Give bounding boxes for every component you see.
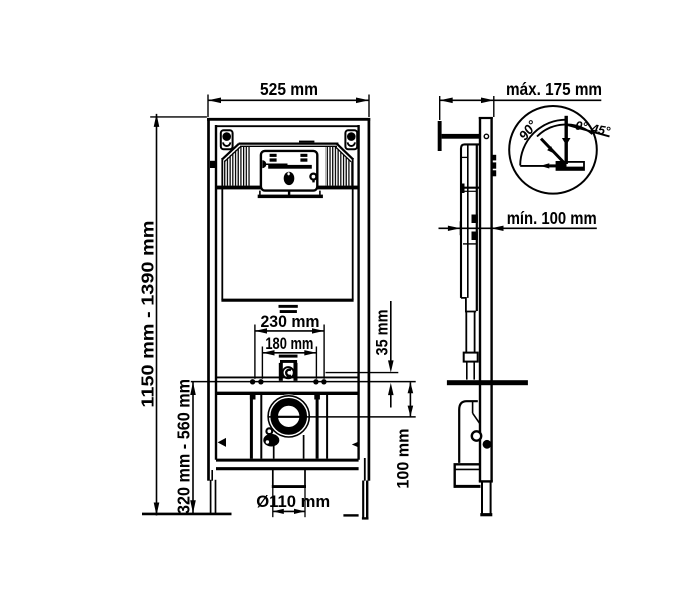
svg-text:máx. 175 mm: máx. 175 mm — [506, 79, 602, 99]
svg-text:mín. 100 mm: mín. 100 mm — [507, 208, 597, 228]
svg-text:1150 mm - 1390 mm: 1150 mm - 1390 mm — [137, 221, 157, 408]
svg-text:Ø110 mm: Ø110 mm — [256, 492, 330, 511]
svg-text:35 mm: 35 mm — [373, 310, 392, 356]
svg-text:180 mm: 180 mm — [265, 334, 313, 353]
svg-text:320 mm - 560 mm: 320 mm - 560 mm — [174, 379, 194, 514]
svg-text:230 mm: 230 mm — [261, 312, 320, 331]
svg-text:100 mm: 100 mm — [394, 429, 413, 489]
svg-text:525 mm: 525 mm — [260, 79, 318, 99]
